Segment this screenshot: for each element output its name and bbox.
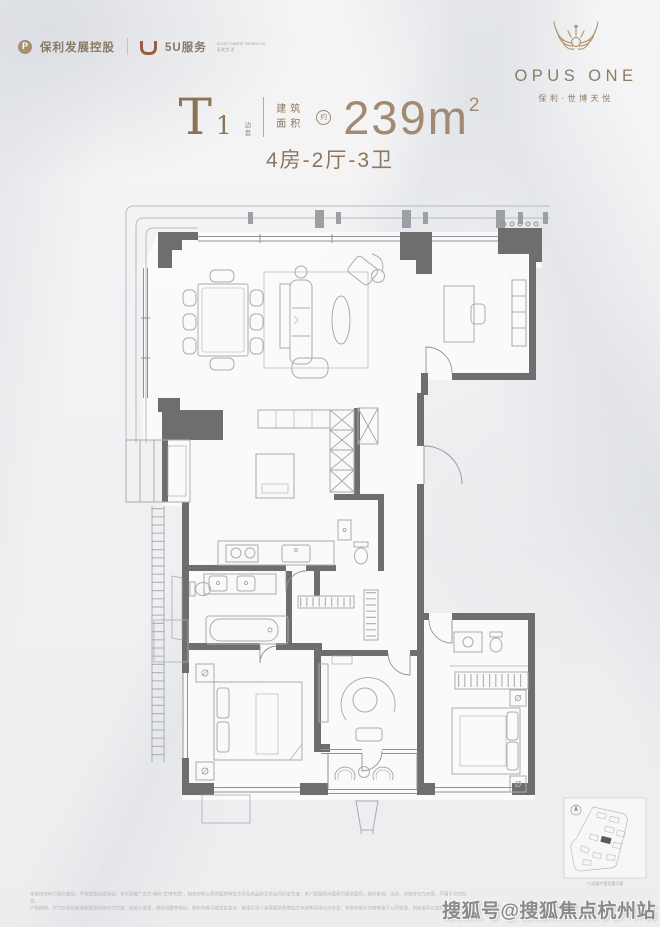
layout-summary: 4房-2厅-3卫 (0, 144, 660, 174)
poly-logo-text: 保利发展控股 (40, 39, 115, 55)
unit-tag-char2: 套 (245, 130, 252, 138)
area-value-number: 239m (343, 94, 469, 141)
unit-tag: 边 套 (245, 122, 252, 138)
5u-logo-text: 5U服务 (165, 39, 207, 55)
floorplan-poster: P 保利发展控股 5U服务 CUSTOMER SERVICE 无忧生活 (0, 0, 660, 927)
watermark: 搜狐号@搜狐焦点杭州站 (442, 896, 656, 923)
unit-title-row: T 1 边 套 建筑 面积 约 239m2 (0, 92, 660, 142)
unit-footprint (143, 232, 542, 800)
brand-name: OPUS ONE (506, 67, 646, 86)
approx-mark: 约 (316, 110, 331, 125)
title-divider (263, 97, 264, 137)
header-logos: P 保利发展控股 5U服务 CUSTOMER SERVICE 无忧生活 (18, 38, 266, 55)
area-label-line1: 建筑 (276, 102, 304, 117)
keyplan-svg (563, 797, 647, 881)
planter (356, 801, 378, 834)
keyplan-caption: T1边套户型位置示意 (563, 881, 647, 887)
unit-letter: T (179, 92, 212, 142)
floorplan (110, 188, 555, 893)
5u-tagline-line2: 无忧生活 (217, 47, 266, 53)
5u-logo-icon (140, 41, 157, 55)
phoenix-emblem-icon (544, 12, 608, 58)
floorplan-svg (110, 188, 555, 888)
brand-block: OPUS ONE 保利·世博天悦 (506, 12, 646, 104)
area-label: 建筑 面积 (276, 102, 304, 132)
area-value-exponent: 2 (469, 96, 482, 115)
area-value: 239m2 (343, 94, 481, 141)
service-door (172, 576, 182, 640)
unit-number: 1 (216, 111, 232, 140)
disclaimer: 本宣传资料为要约邀请，不构成要约或承诺；本项目推广名为“保利·世博天悦”，相关权… (30, 891, 470, 912)
disclaimer-line2: 户型结构、尺寸以规划核准图纸及实际交付为准；因设计变更、规划调整等原因，图示内容… (30, 905, 470, 912)
unit-tag-char1: 边 (245, 122, 252, 130)
5u-tagline: CUSTOMER SERVICE 无忧生活 (217, 41, 266, 52)
disclaimer-line1: 本宣传资料为要约邀请，不构成要约或承诺；本项目推广名为“保利·世博天悦”，相关权… (30, 891, 470, 905)
logo-divider (127, 38, 128, 55)
poly-logo-icon: P (18, 40, 32, 54)
area-label-line2: 面积 (276, 117, 304, 132)
keyplan (563, 797, 647, 886)
